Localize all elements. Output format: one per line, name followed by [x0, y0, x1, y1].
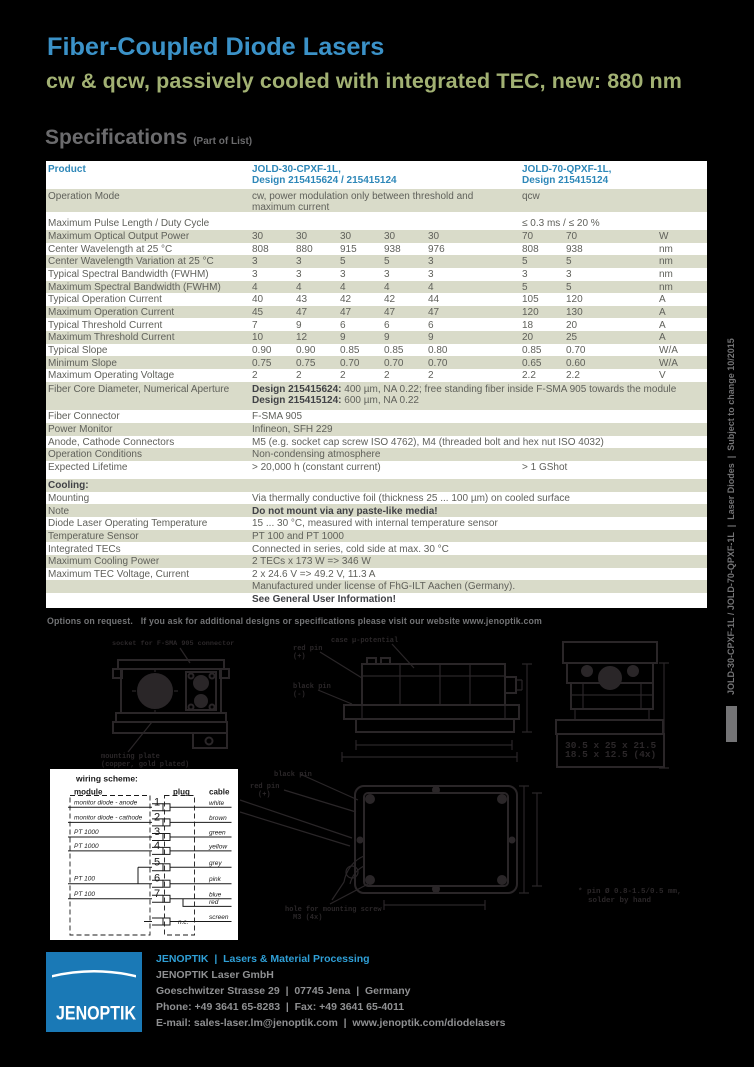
svg-text:M3 (4x): M3 (4x): [293, 914, 322, 922]
svg-text:7: 7: [154, 888, 160, 900]
svg-text:solder by hand: solder by hand: [588, 897, 651, 905]
svg-text:brown: brown: [209, 815, 227, 822]
svg-text:(-): (-): [293, 691, 306, 699]
svg-text:green: green: [209, 830, 226, 837]
svg-text:PT 1000: PT 1000: [74, 843, 99, 850]
svg-text:grey: grey: [209, 860, 222, 867]
svg-text:red pin: red pin: [293, 645, 322, 653]
svg-text:black pin: black pin: [274, 771, 312, 779]
svg-text:(+): (+): [258, 791, 271, 799]
svg-text:monitor diode - anode: monitor diode - anode: [74, 799, 138, 806]
svg-text:red pin: red pin: [250, 783, 279, 791]
svg-text:case µ-potential: case µ-potential: [331, 637, 398, 645]
svg-text:hole for mounting screw: hole for mounting screw: [285, 906, 382, 914]
svg-text:* pin Ø 0.8-1.5/0.5 mm,: * pin Ø 0.8-1.5/0.5 mm,: [578, 887, 682, 896]
svg-text:PT 1000: PT 1000: [74, 829, 99, 836]
svg-text:3: 3: [154, 826, 160, 838]
svg-text:socket for F-SMA 905 connector: socket for F-SMA 905 connector: [112, 640, 234, 648]
svg-text:JENOPTIK: JENOPTIK: [56, 1004, 136, 1025]
svg-text:18.5 x 12.5 (4x): 18.5 x 12.5 (4x): [565, 749, 656, 760]
svg-text:screen: screen: [209, 914, 229, 921]
svg-text:cable: cable: [209, 788, 230, 797]
svg-text:PT 100: PT 100: [74, 876, 95, 883]
svg-text:black pin: black pin: [293, 683, 331, 691]
svg-text:5: 5: [154, 856, 160, 868]
svg-text:4: 4: [154, 840, 160, 852]
svg-text:pink: pink: [208, 876, 222, 883]
svg-text:yellow: yellow: [208, 843, 228, 850]
svg-text:monitor diode - cathode: monitor diode - cathode: [74, 814, 143, 821]
svg-text:n.c.: n.c.: [178, 919, 189, 926]
svg-text:red: red: [209, 899, 219, 906]
svg-text:1: 1: [154, 796, 160, 808]
svg-text:wiring scheme:: wiring scheme:: [75, 774, 138, 784]
svg-text:white: white: [209, 800, 225, 807]
svg-text:6: 6: [154, 873, 160, 885]
svg-text:mounting plate: mounting plate: [101, 753, 160, 761]
svg-text:(copper, gold plated): (copper, gold plated): [101, 761, 189, 769]
svg-text:2: 2: [154, 811, 160, 823]
svg-text:(+): (+): [293, 653, 306, 661]
svg-text:blue: blue: [209, 891, 222, 898]
svg-text:PT 100: PT 100: [74, 891, 95, 898]
